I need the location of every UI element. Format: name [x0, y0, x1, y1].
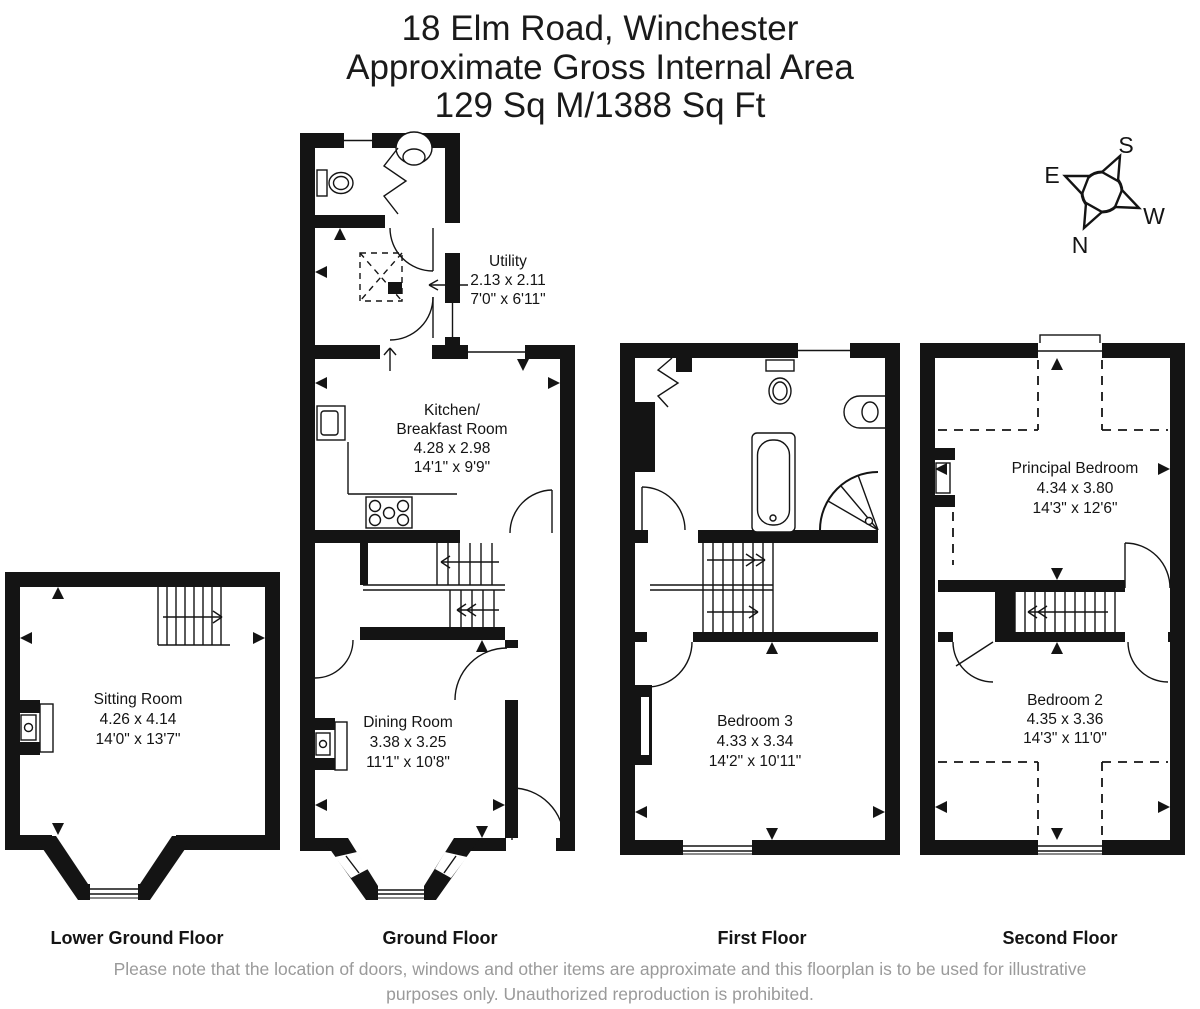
room-imperial-kitchen: 14'1" x 9'9" — [414, 459, 490, 476]
room-name-bedroom3: Bedroom 3 — [717, 713, 793, 730]
room-name-principal: Principal Bedroom — [1012, 460, 1139, 477]
wall-stair-side — [360, 543, 368, 585]
floor-label-second: Second Floor — [1002, 928, 1117, 948]
room-metric-sitting-room: 4.26 x 4.14 — [100, 711, 177, 728]
title-line-1: 18 Elm Road, Winchester — [402, 9, 799, 48]
window — [641, 697, 649, 755]
title-line-2: Approximate Gross Internal Area — [346, 48, 854, 87]
wall-principal-bottom — [938, 580, 1125, 592]
room-metric-bedroom2: 4.35 x 3.36 — [1027, 711, 1104, 728]
window — [1038, 840, 1102, 855]
room-imperial-utility: 7'0" x 6'11" — [470, 291, 545, 308]
window — [445, 303, 460, 337]
room-metric-utility: 2.13 x 2.11 — [470, 272, 546, 289]
room-imperial-principal: 14'3" x 12'6" — [1032, 500, 1117, 517]
room-imperial-bedroom3: 14'2" x 10'11" — [709, 753, 801, 770]
fireplace — [20, 700, 53, 755]
room-imperial-bedroom2: 14'3" x 11'0" — [1023, 730, 1107, 747]
bay-window — [322, 838, 480, 900]
compass-label-east: E — [1044, 162, 1059, 188]
floor-label-ground: Ground Floor — [383, 928, 498, 948]
compass-label-south: S — [1118, 132, 1133, 158]
floorplan-lower-ground-floor: Sitting Room 4.26 x 4.14 14'0" x 13'7" — [5, 572, 280, 900]
basin-icon — [396, 132, 432, 165]
floorplan-page: 18 Elm Road, Winchester Approximate Gros… — [0, 0, 1200, 1009]
window — [683, 840, 752, 855]
floorplan-first-floor: Bedroom 3 4.33 x 3.34 14'2" x 10'11" — [620, 343, 900, 855]
bay-window — [34, 835, 194, 900]
wall-wc-divider — [315, 215, 385, 228]
basin-icon — [844, 396, 885, 428]
floorplan-second-floor: Principal Bedroom 4.34 x 3.80 14'3" x 12… — [920, 335, 1185, 855]
room-metric-dining: 3.38 x 3.25 — [370, 734, 447, 751]
compass-rose: S E W N — [1044, 132, 1165, 258]
disclaimer-line-2: purposes only. Unauthorized reproduction… — [386, 984, 814, 1004]
bathtub-icon — [752, 433, 795, 532]
compass-label-north: N — [1072, 232, 1089, 258]
hob-icon — [366, 497, 412, 528]
window — [344, 133, 372, 148]
title-line-3: 129 Sq M/1388 Sq Ft — [435, 86, 766, 125]
wall-closet — [676, 358, 692, 372]
room-name-utility: Utility — [489, 253, 527, 270]
window — [468, 345, 525, 359]
dormer-window — [1038, 335, 1102, 358]
floor-label-lower-ground: Lower Ground Floor — [51, 928, 224, 948]
door-gap-kitchen — [380, 345, 432, 359]
room-metric-bedroom3: 4.33 x 3.34 — [717, 733, 794, 750]
compass-label-west: W — [1143, 203, 1165, 229]
room-metric-principal: 4.34 x 3.80 — [1037, 480, 1114, 497]
toilet-icon — [317, 170, 353, 196]
room-name-bedroom2: Bedroom 2 — [1027, 692, 1103, 709]
room-imperial-sitting-room: 14'0" x 13'7" — [95, 731, 180, 748]
sink-icon — [317, 406, 345, 440]
room-name-dining: Dining Room — [363, 714, 453, 731]
room-name-kitchen-1: Kitchen/ — [424, 402, 481, 419]
room-metric-kitchen: 4.28 x 2.98 — [414, 440, 491, 457]
room-name-kitchen-2: Breakfast Room — [396, 421, 507, 438]
door-gap-right — [445, 223, 460, 253]
page-title: 18 Elm Road, Winchester Approximate Gros… — [346, 9, 854, 125]
wall-kitchen-bottom — [315, 530, 460, 543]
door-gap-dining — [505, 648, 518, 700]
floorplan-ground-floor: Utility 2.13 x 2.11 7'0" x 6'11" Kitchen… — [300, 132, 575, 900]
wall-stair-stub — [995, 592, 1015, 632]
disclaimer-note: Please note that the location of doors, … — [114, 959, 1087, 1004]
floor-label-first: First Floor — [718, 928, 807, 948]
room-name-sitting-room: Sitting Room — [94, 691, 183, 708]
room-imperial-dining: 11'1" x 10'8" — [366, 754, 450, 771]
window — [798, 343, 850, 358]
disclaimer-line-1: Please note that the location of doors, … — [114, 959, 1087, 979]
